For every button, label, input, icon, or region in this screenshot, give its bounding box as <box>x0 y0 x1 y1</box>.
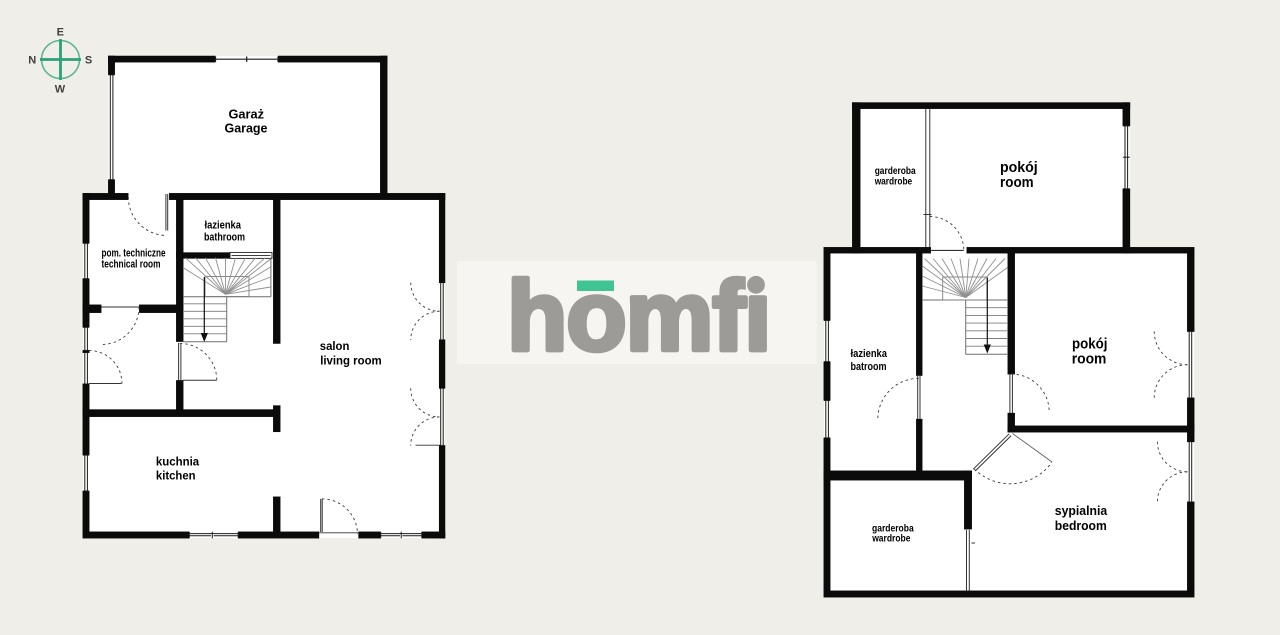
svg-text:kuchnia: kuchnia <box>156 455 200 469</box>
svg-text:kitchen: kitchen <box>156 469 196 483</box>
svg-text:homfi: homfi <box>507 260 770 371</box>
svg-text:technical room: technical room <box>102 259 161 271</box>
svg-text:garderoba: garderoba <box>875 166 916 177</box>
svg-text:E: E <box>57 27 64 39</box>
svg-text:S: S <box>85 54 92 66</box>
svg-text:N: N <box>28 54 36 66</box>
svg-text:Garaż: Garaż <box>229 108 265 122</box>
svg-text:bedroom: bedroom <box>1055 519 1107 533</box>
svg-text:Garage: Garage <box>225 122 268 136</box>
svg-text:sypialnia: sypialnia <box>1055 504 1108 518</box>
svg-text:bathroom: bathroom <box>204 232 245 244</box>
svg-text:wardrobe: wardrobe <box>874 177 913 188</box>
svg-text:room: room <box>1000 174 1034 191</box>
svg-text:living room: living room <box>320 353 382 367</box>
svg-text:salon: salon <box>320 339 350 353</box>
svg-text:batroom: batroom <box>851 361 887 373</box>
svg-text:W: W <box>55 83 66 95</box>
svg-text:wardrobe: wardrobe <box>871 534 911 545</box>
svg-text:room: room <box>1072 351 1107 368</box>
svg-text:łazienka: łazienka <box>851 348 888 360</box>
svg-text:łazienka: łazienka <box>205 220 242 232</box>
